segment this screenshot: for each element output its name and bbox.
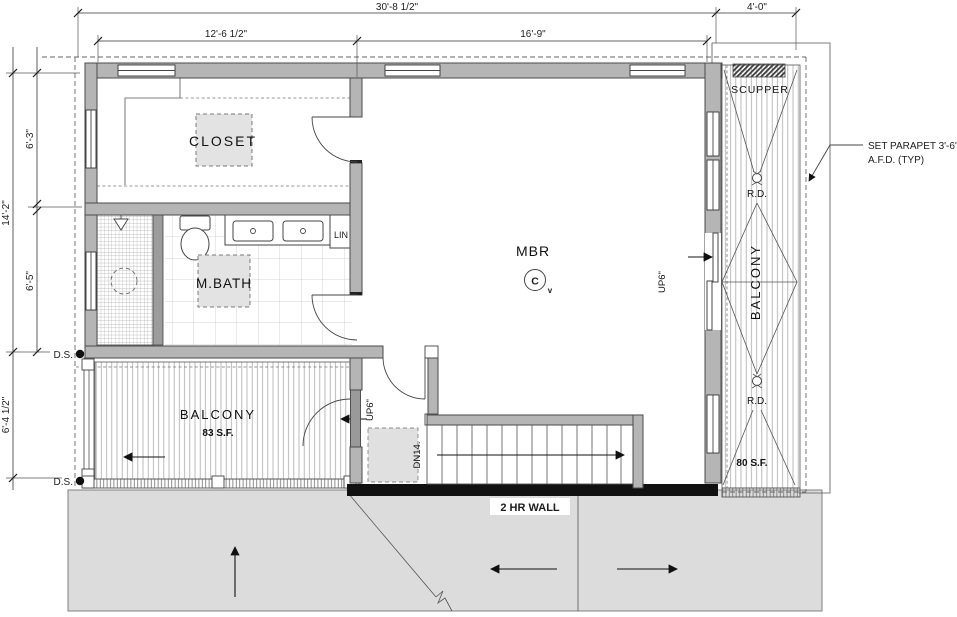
stair-landing-dashed (368, 428, 418, 482)
closet-door-swing (312, 117, 357, 162)
dim-overall-width: 30'-8 1/2" (376, 2, 419, 13)
ceiling-fan-letter: C (531, 276, 539, 288)
mbr-door-swing (383, 357, 425, 399)
downspout-upper-label: D.S. (54, 350, 73, 361)
east-balcony-area: 80 S.F. (736, 458, 767, 469)
roof-drain-icon (753, 377, 762, 386)
parapet-note-line2: A.F.D. (TYP) (868, 155, 924, 166)
wall-hall-east (428, 358, 438, 416)
roof-drain-lower-label: R.D. (747, 396, 767, 407)
roof-drain-icon (753, 174, 762, 183)
up-east-label: UP6" (657, 271, 668, 293)
parapet-note-leader (809, 145, 863, 181)
shower-curb (153, 215, 163, 345)
dim-seg-left: 12'-6 1/2" (205, 29, 248, 40)
dim-depth-lower: 6'-5" (25, 271, 36, 291)
downspout-icon (76, 477, 84, 485)
scupper-hatch-icon (733, 64, 785, 77)
dim-west-balcony-depth: 6'-4 1/2" (1, 396, 12, 433)
wall-stair-north (427, 415, 633, 425)
wall-bath-mbr (350, 163, 362, 295)
rail-post (212, 476, 224, 488)
dim-overall-depth: 14'-2" (1, 200, 12, 226)
mbr-room: MBR C v (516, 243, 553, 295)
floor-plan-drawing: BALCONY 83 S.F. SCUPPER R.D. BALCONY R.D… (0, 0, 957, 617)
wall-closet-bath (85, 203, 362, 215)
west-balcony-label: BALCONY (180, 407, 256, 422)
dim-east-balcony: 4'-0" (747, 2, 767, 13)
wall-bath-south (85, 346, 383, 358)
scupper-label: SCUPPER (731, 84, 789, 96)
east-balcony-edge-strip (722, 488, 800, 497)
downspouts: D.S. D.S. (54, 350, 85, 488)
dim-depth-upper: 6'-3" (25, 129, 36, 149)
parapet-note: SET PARAPET 3'-6" A.F.D. (TYP) (809, 141, 957, 181)
lower-roof-surface (68, 490, 822, 611)
hall-stairs: DN14. UP6" (341, 399, 633, 484)
sliding-door-panel (707, 281, 712, 330)
east-balcony-label: BALCONY (748, 244, 763, 320)
fire-wall-label: 2 HR WALL (500, 502, 560, 514)
downspout-lower-label: D.S. (54, 477, 73, 488)
wall-stair-east (633, 415, 643, 488)
up-west-label: UP6" (365, 399, 376, 421)
west-balcony-area: 83 S.F. (202, 428, 233, 439)
sink-icon (233, 221, 273, 241)
sliding-door-panel (713, 233, 718, 282)
roof-drain-upper-label: R.D. (747, 189, 767, 200)
dim-seg-right: 16'-9" (520, 29, 546, 40)
parapet-note-line1: SET PARAPET 3'-6" (868, 141, 957, 152)
wall-cap (425, 346, 438, 358)
linen-label: LIN (334, 230, 348, 240)
west-balcony: BALCONY 83 S.F. (76, 358, 360, 488)
ceiling-fan-sub: v (548, 286, 553, 295)
shower-icon (95, 215, 153, 345)
balcony-door-panel (351, 390, 361, 447)
closet-label: CLOSET (189, 133, 257, 149)
east-balcony: SCUPPER R.D. BALCONY R.D. 80 S.F. (722, 64, 800, 497)
mbr-label: MBR (516, 243, 550, 259)
rail-post (82, 359, 94, 370)
wall-balcony-door-upper (350, 358, 362, 390)
mbath-label: M.BATH (196, 276, 252, 291)
closet-room: CLOSET (97, 78, 350, 186)
floor-plan-page: BALCONY 83 S.F. SCUPPER R.D. BALCONY R.D… (0, 0, 957, 617)
fire-wall-band (347, 484, 718, 496)
wall-balcony-door-lower (350, 447, 362, 483)
east-step: UP6" (657, 257, 712, 293)
closet-counter-line (125, 98, 180, 185)
wall-closet-mbr (350, 78, 362, 117)
lower-roof (68, 490, 822, 611)
sink-icon (283, 221, 323, 241)
mbath-room: LIN M.BATH (95, 210, 352, 345)
stair-dn-label: DN14. (412, 442, 423, 469)
downspout-icon (76, 350, 84, 358)
